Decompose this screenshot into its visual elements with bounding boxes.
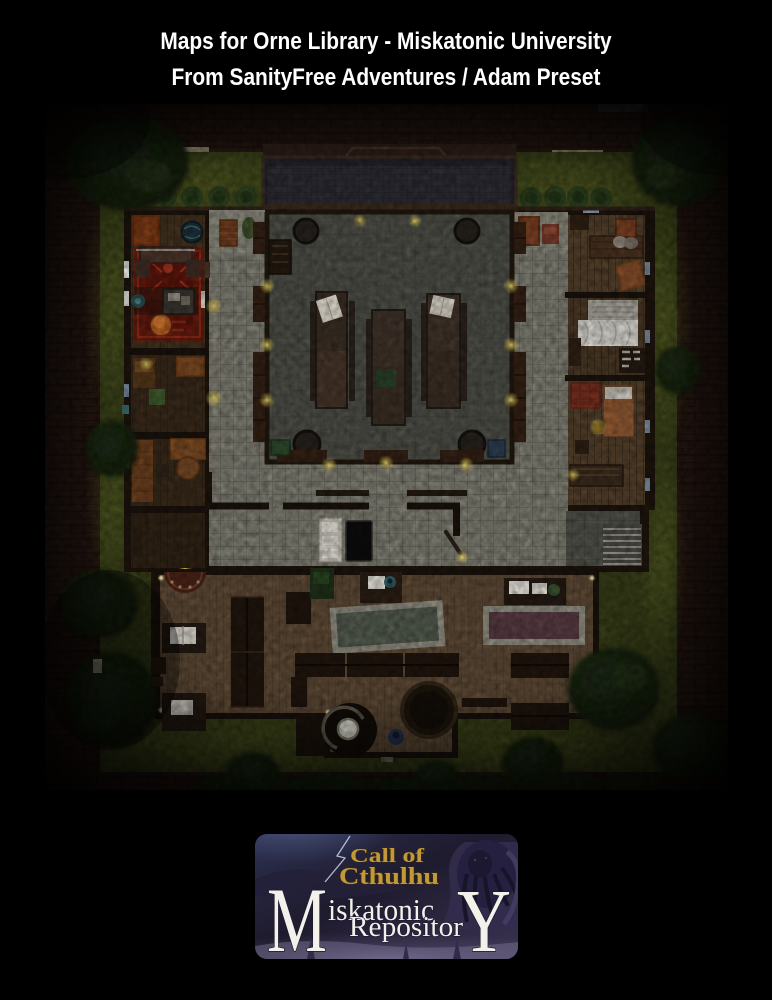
svg-text:Repositor: Repositor bbox=[349, 912, 464, 943]
svg-text:M: M bbox=[267, 869, 327, 959]
svg-text:Y: Y bbox=[457, 872, 511, 959]
svg-text:Cthulhu: Cthulhu bbox=[339, 864, 439, 890]
